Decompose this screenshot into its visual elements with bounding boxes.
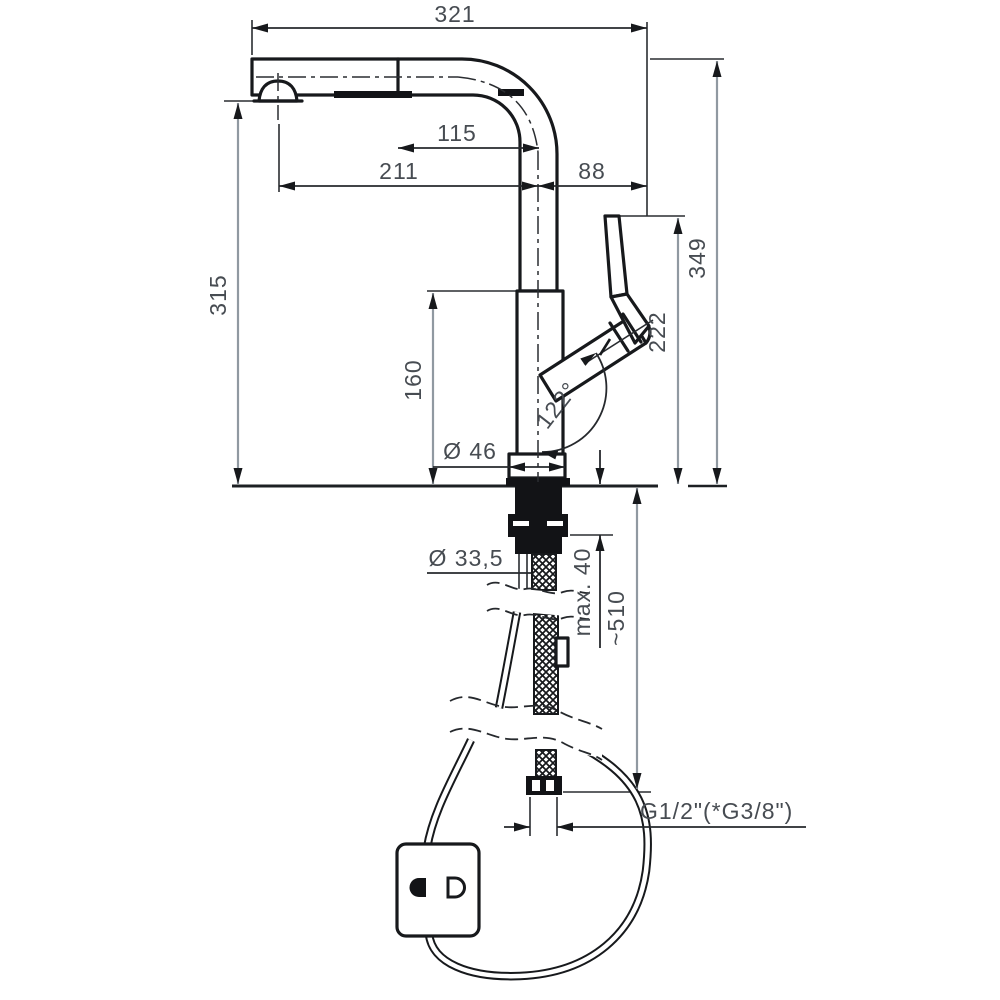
drawing-canvas: 321 115 211 88 315 160 222 349 Ø 46 122°… bbox=[0, 0, 1000, 1000]
handle-lever-upper bbox=[605, 216, 627, 297]
dim-hole-diameter: Ø 33,5 bbox=[428, 545, 503, 571]
dim-max-counter-thickness: max. 40 bbox=[569, 548, 595, 637]
dim-handle-offset: 88 bbox=[578, 158, 606, 184]
dim-thread-size: G1/2"(*G3/8") bbox=[640, 798, 793, 824]
dim-spout-height: 315 bbox=[205, 274, 231, 315]
hose-end-nut bbox=[526, 776, 562, 795]
centerlines bbox=[256, 73, 538, 482]
dim-body-height: 160 bbox=[400, 359, 426, 400]
dim-head-reach: 115 bbox=[437, 120, 477, 146]
dim-base-diameter: Ø 46 bbox=[443, 438, 497, 464]
faucet-technical-drawing: 321 115 211 88 315 160 222 349 Ø 46 122°… bbox=[0, 0, 1000, 1000]
dim-total-reach: 321 bbox=[434, 1, 475, 27]
weight-hole-right bbox=[448, 878, 465, 897]
braided-hose bbox=[532, 554, 556, 590]
hose-fitting bbox=[556, 638, 568, 666]
dim-hose-length: ~510 bbox=[603, 590, 629, 646]
hose-weight bbox=[397, 844, 479, 936]
spray-grip-dash bbox=[334, 91, 412, 98]
mounting-nut bbox=[515, 537, 562, 554]
dim-total-height: 349 bbox=[684, 237, 710, 278]
dim-spout-reach: 211 bbox=[379, 158, 419, 184]
dim-handle-height: 222 bbox=[644, 311, 670, 352]
mounting-hardware bbox=[506, 478, 570, 554]
